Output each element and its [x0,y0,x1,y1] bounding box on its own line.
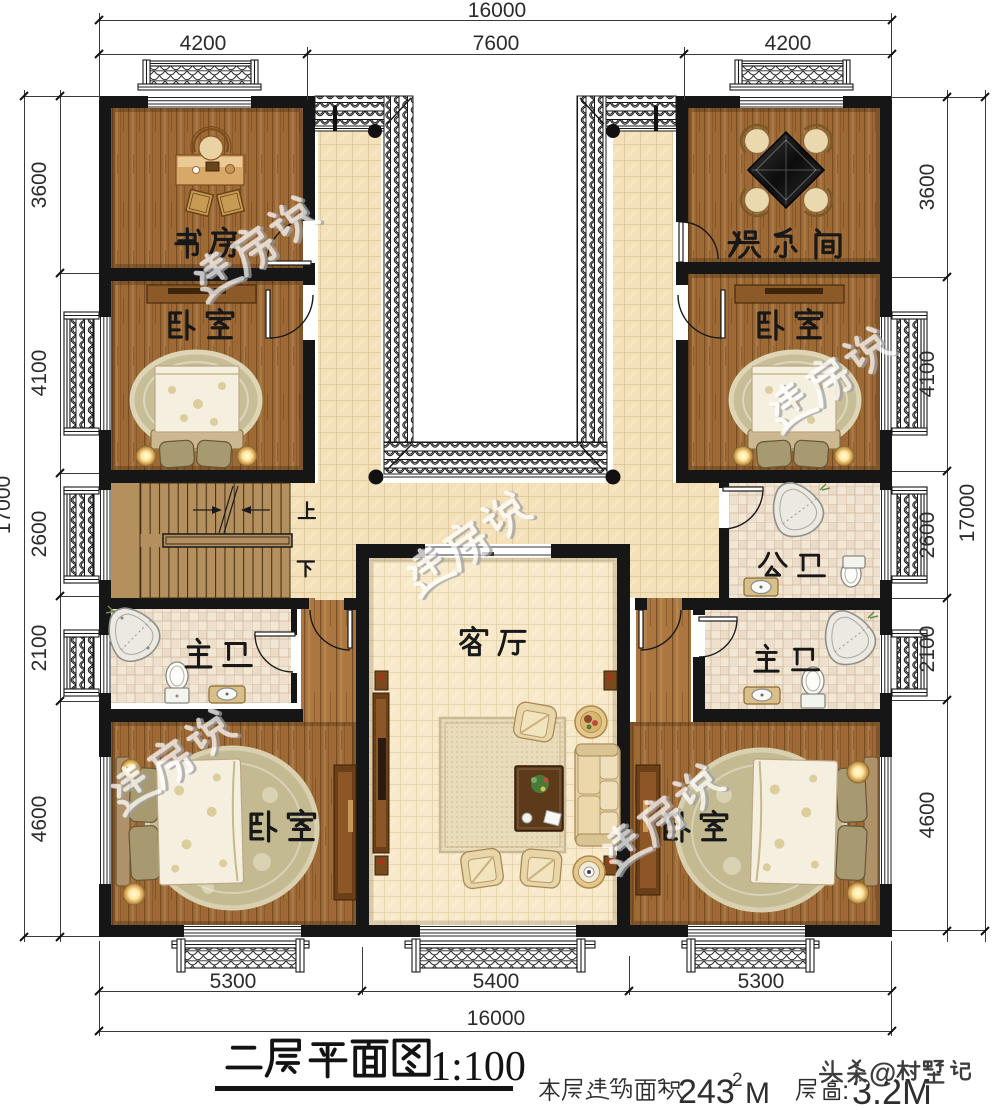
svg-text:17000: 17000 [956,484,979,542]
svg-text:16000: 16000 [467,1007,525,1030]
svg-text:2600: 2600 [28,511,51,558]
svg-text:243: 243 [678,1073,735,1110]
svg-text:2100: 2100 [916,626,939,673]
svg-text::: : [842,1075,849,1105]
svg-text:M: M [745,1077,770,1110]
svg-text:16000: 16000 [468,0,526,22]
svg-text:2: 2 [732,1070,743,1091]
svg-text:5300: 5300 [738,970,785,993]
svg-text:7600: 7600 [473,32,520,55]
svg-text:2100: 2100 [28,625,51,672]
svg-text:5300: 5300 [210,970,257,993]
svg-text:3600: 3600 [28,162,51,209]
svg-text:5400: 5400 [473,970,520,993]
svg-text:17000: 17000 [0,476,15,534]
svg-text:1:100: 1:100 [430,1044,526,1090]
svg-text:2600: 2600 [916,512,939,559]
svg-text:4600: 4600 [916,792,939,839]
svg-text:4100: 4100 [28,350,51,397]
svg-text:4100: 4100 [916,351,939,398]
svg-text:3600: 3600 [916,164,939,211]
svg-text:4200: 4200 [765,32,812,55]
svg-text:4600: 4600 [28,796,51,843]
svg-text:4200: 4200 [180,32,227,55]
svg-text:@: @ [869,1057,896,1088]
